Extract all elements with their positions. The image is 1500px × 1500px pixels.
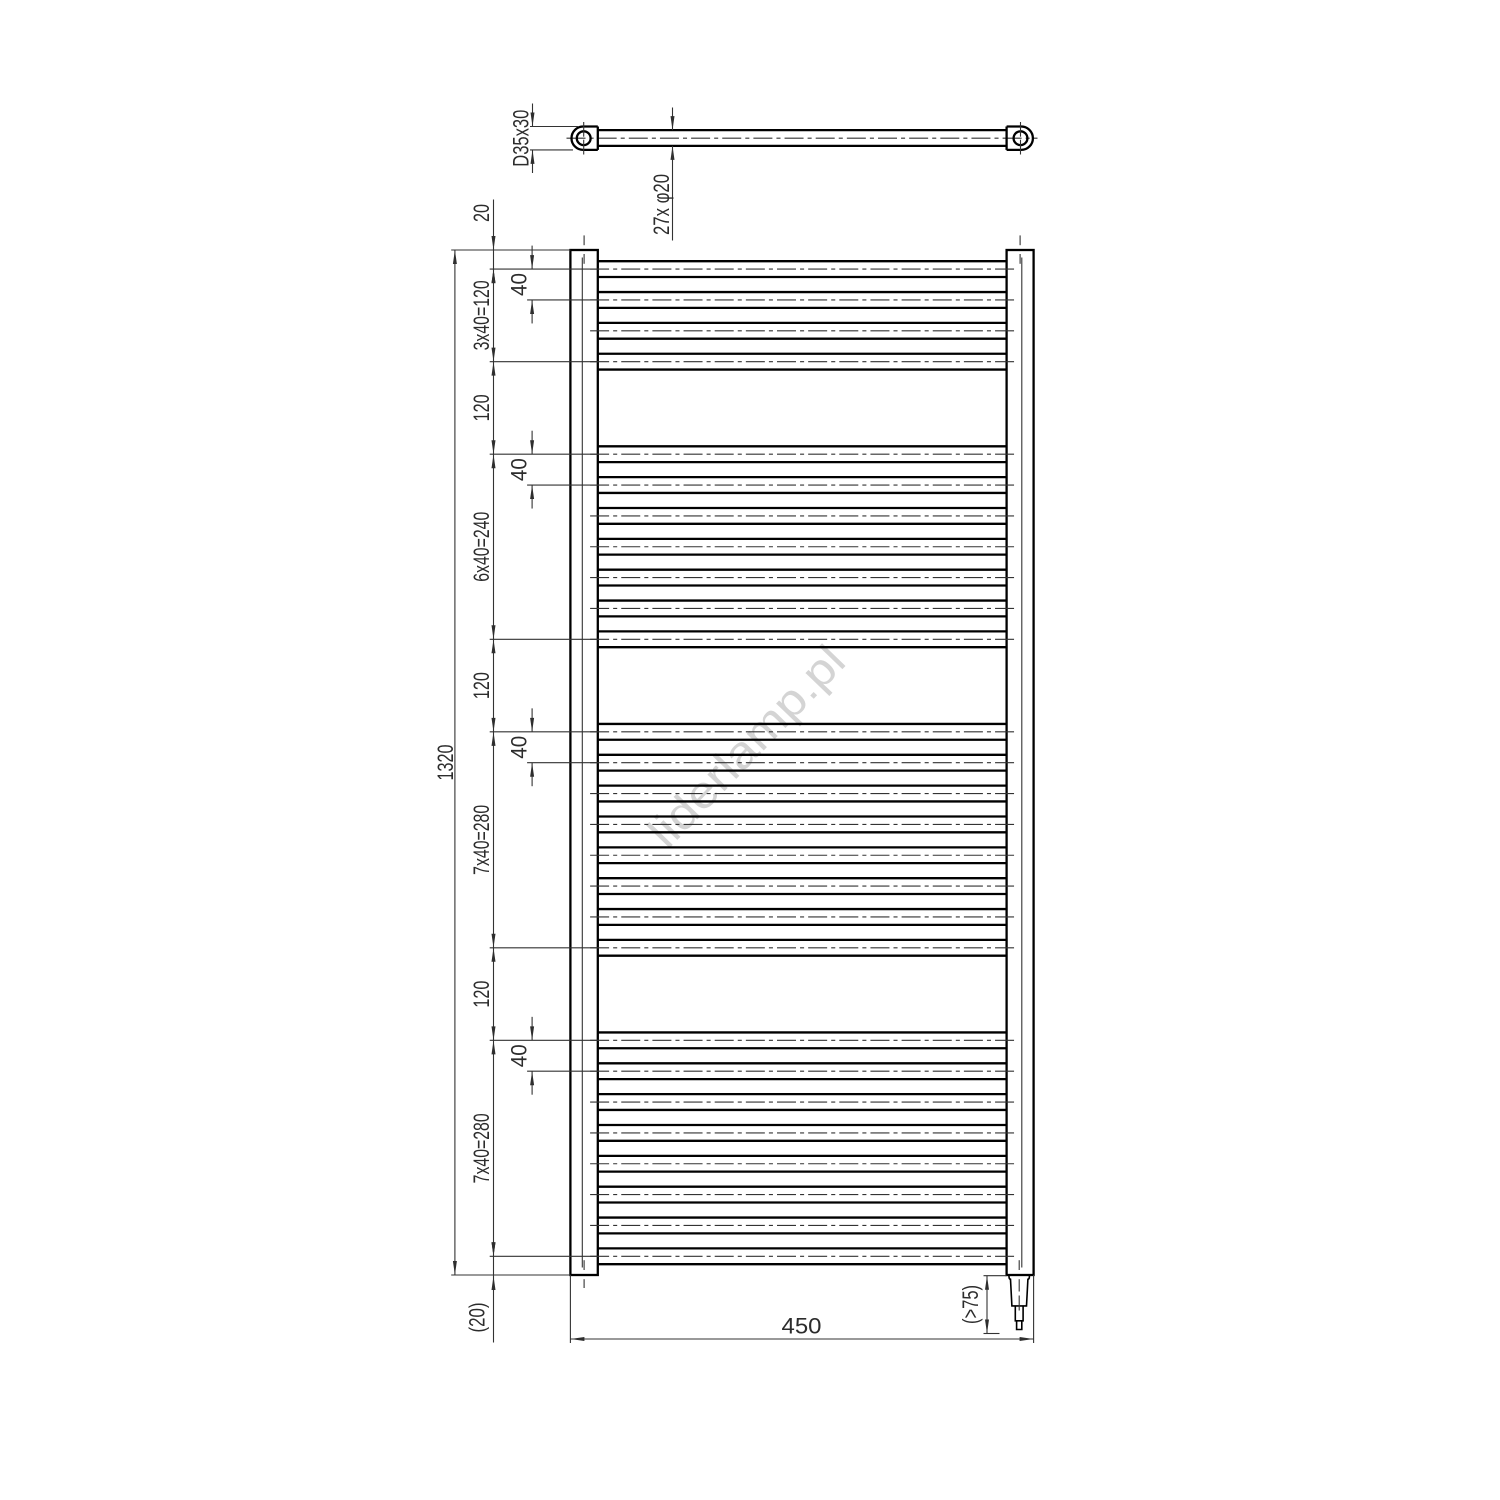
svg-text:20: 20 [469, 204, 494, 222]
svg-text:27x φ20: 27x φ20 [649, 174, 674, 235]
svg-text:40: 40 [507, 273, 532, 296]
svg-text:3x40=120: 3x40=120 [469, 280, 494, 350]
svg-text:1320: 1320 [433, 745, 458, 781]
svg-text:6x40=240: 6x40=240 [469, 512, 494, 582]
svg-text:120: 120 [469, 394, 494, 421]
svg-text:7x40=280: 7x40=280 [469, 1113, 494, 1183]
svg-text:40: 40 [507, 736, 532, 759]
svg-text:120: 120 [469, 672, 494, 699]
svg-text:40: 40 [507, 458, 532, 481]
svg-text:450: 450 [782, 1314, 822, 1339]
svg-text:D35x30: D35x30 [509, 110, 534, 167]
svg-text:(>75): (>75) [958, 1285, 983, 1324]
svg-text:40: 40 [507, 1044, 532, 1067]
svg-text:7x40=280: 7x40=280 [469, 805, 494, 875]
svg-text:(20): (20) [465, 1303, 490, 1333]
svg-text:120: 120 [469, 981, 494, 1008]
